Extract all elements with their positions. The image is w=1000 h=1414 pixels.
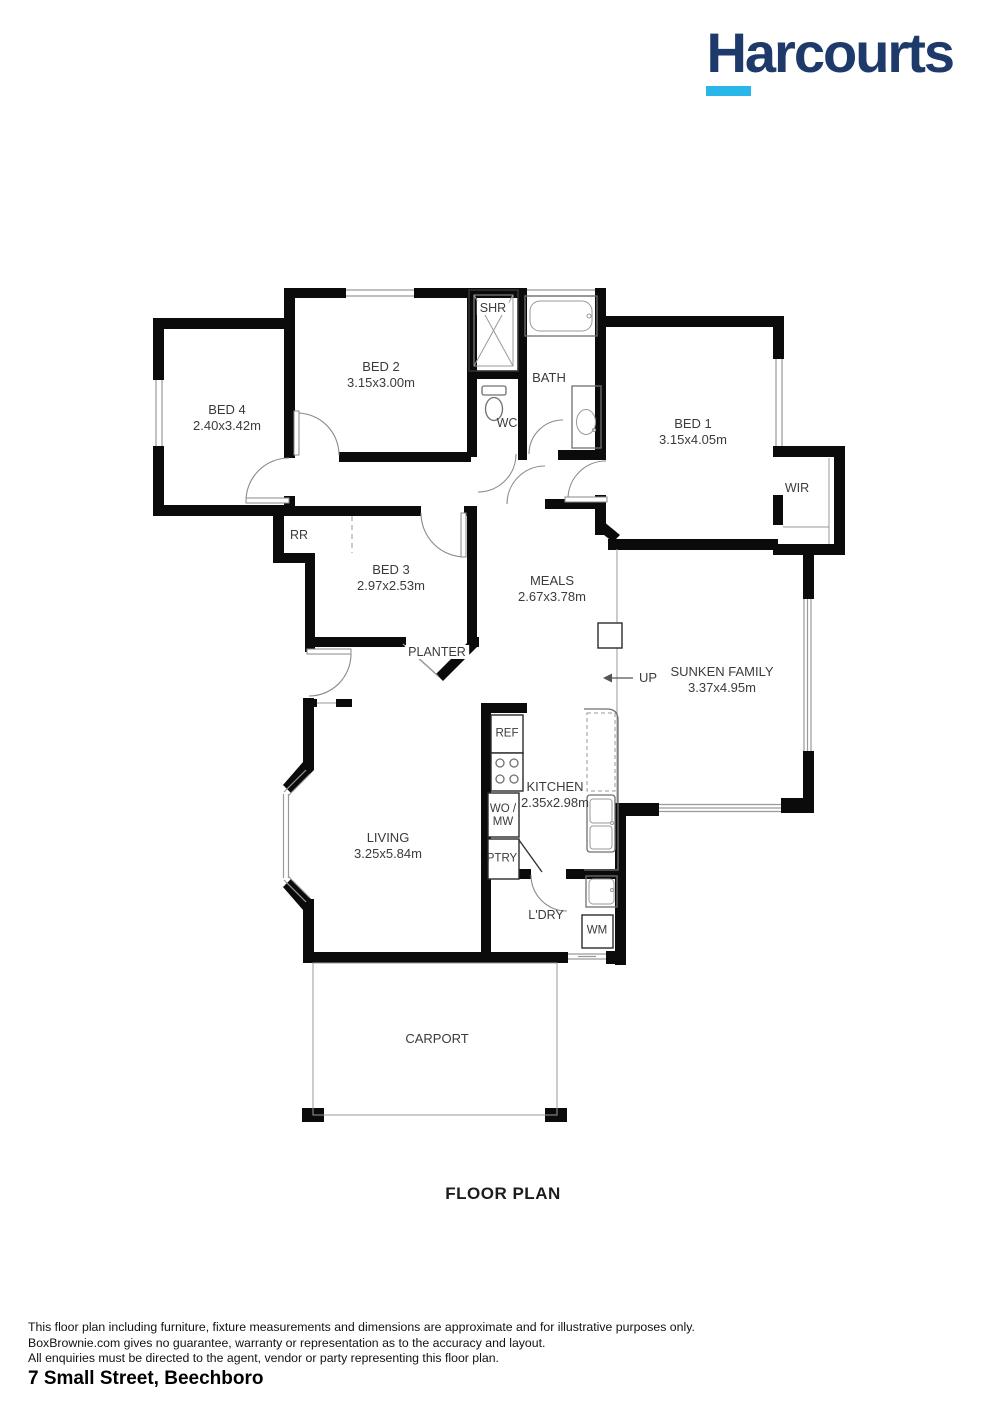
feature-label-up: UP (639, 670, 657, 686)
feature-label-shr: SHR (477, 300, 509, 316)
bathtub (525, 296, 597, 336)
room-label-bed3: BED 3 2.97x2.53m (357, 562, 425, 594)
disclaimer-line-2: BoxBrownie.com gives no guarantee, warra… (28, 1336, 695, 1352)
wir-shelf (783, 458, 829, 544)
room-label-family: SUNKEN FAMILY 3.37x4.95m (670, 664, 773, 696)
room-label-meals: MEALS 2.67x3.78m (518, 573, 586, 605)
room-label-carport: CARPORT (405, 1031, 468, 1047)
feature-label-wo-mw: WO / MW (490, 803, 516, 829)
doors (246, 411, 607, 911)
feature-label-wm: WM (587, 925, 607, 938)
cooktop (491, 753, 523, 791)
feature-label-bath: BATH (532, 370, 566, 386)
feature-label-wc: WC (497, 415, 518, 431)
page: { "logo": { "text": "Harcourts", "navy":… (0, 0, 1000, 1414)
feature-label-rr: RR (290, 527, 308, 543)
disclaimer-line-1: This floor plan including furniture, fix… (28, 1320, 695, 1336)
feature-label-planter: PLANTER (405, 644, 469, 660)
kitchen-bench (584, 709, 618, 870)
disclaimer-text: This floor plan including furniture, fix… (28, 1320, 695, 1367)
room-label-laundry: L'DRY (528, 907, 564, 923)
floor-plan-title: FLOOR PLAN (445, 1184, 561, 1204)
room-label-living: LIVING 3.25x5.84m (354, 830, 422, 862)
disclaimer-line-3: All enquiries must be directed to the ag… (28, 1351, 695, 1367)
room-label-bed2: BED 2 3.15x3.00m (347, 359, 415, 391)
feature-label-ref: REF (496, 728, 519, 741)
room-label-kitchen: KITCHEN 2.35x2.98m (521, 779, 589, 811)
up-arrow (603, 674, 633, 683)
feature-label-wir: WIR (785, 480, 809, 496)
laundry-trough (586, 876, 617, 907)
property-address: 7 Small Street, Beechboro (28, 1368, 263, 1390)
room-label-bed4: BED 4 2.40x3.42m (193, 402, 261, 434)
feature-label-ptry: PTRY (487, 853, 517, 866)
room-label-bed1: BED 1 3.15x4.05m (659, 416, 727, 448)
